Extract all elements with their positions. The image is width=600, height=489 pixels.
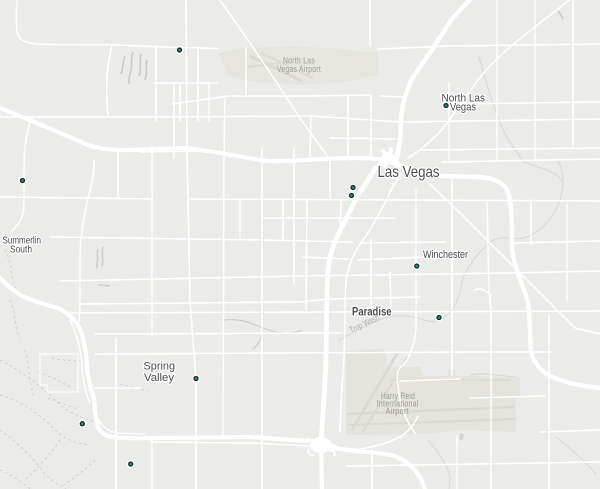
svg-text:Vegas Airport: Vegas Airport [277,64,321,74]
svg-text:Airport: Airport [386,406,410,416]
svg-text:Valley: Valley [144,372,175,384]
svg-text:Las Vegas: Las Vegas [378,164,440,181]
svg-text:Spring: Spring [144,361,176,373]
svg-text:Vegas: Vegas [450,102,476,114]
svg-text:Winchester: Winchester [423,249,468,261]
svg-text:South: South [10,245,32,256]
